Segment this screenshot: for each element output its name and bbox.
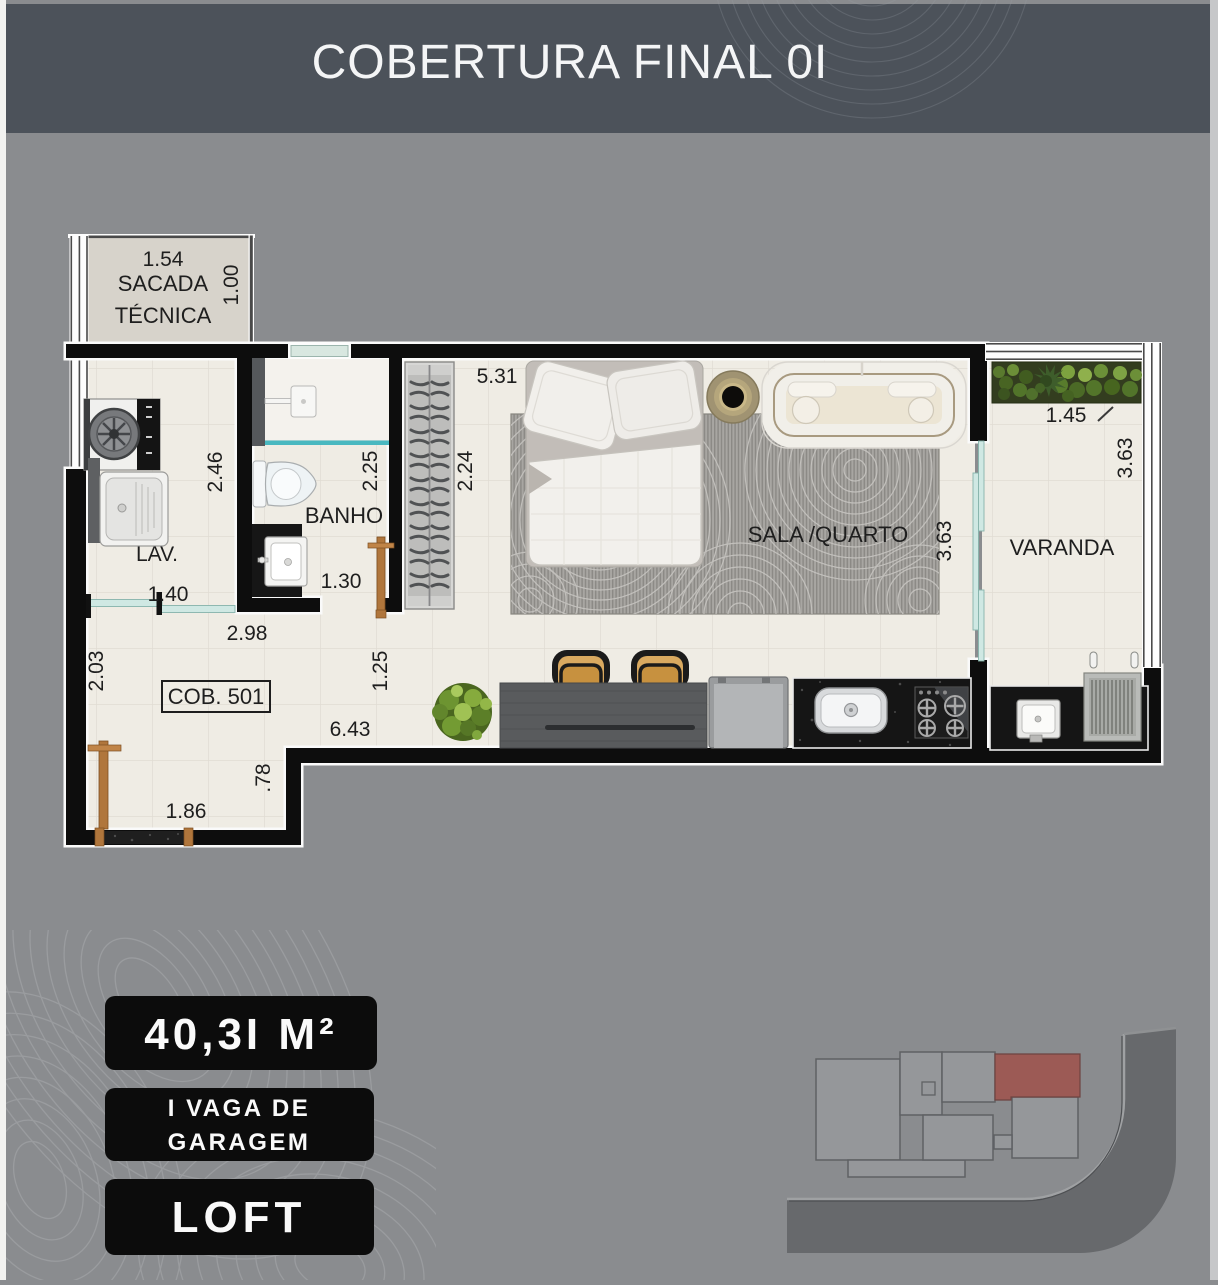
svg-text:VARANDA: VARANDA bbox=[1010, 535, 1115, 560]
svg-text:1.30: 1.30 bbox=[321, 570, 362, 593]
svg-text:2.98: 2.98 bbox=[227, 622, 268, 645]
svg-text:2.03: 2.03 bbox=[85, 651, 108, 692]
svg-text:I VAGA DE: I VAGA DE bbox=[168, 1095, 311, 1122]
svg-text:LOFT: LOFT bbox=[172, 1193, 307, 1242]
svg-text:1.00: 1.00 bbox=[220, 265, 243, 306]
svg-text:GARAGEM: GARAGEM bbox=[168, 1129, 311, 1156]
svg-text:1.40: 1.40 bbox=[148, 583, 189, 606]
svg-text:3.63: 3.63 bbox=[933, 521, 956, 562]
svg-text:6.43: 6.43 bbox=[330, 718, 371, 741]
svg-text:40,3I M²: 40,3I M² bbox=[144, 1010, 337, 1059]
svg-text:1.86: 1.86 bbox=[166, 800, 207, 823]
svg-text:LAV.: LAV. bbox=[136, 543, 178, 566]
svg-text:COB. 501: COB. 501 bbox=[168, 684, 265, 709]
svg-text:2.25: 2.25 bbox=[359, 451, 382, 492]
svg-text:3.63: 3.63 bbox=[1114, 438, 1137, 479]
svg-text:2.46: 2.46 bbox=[204, 452, 227, 493]
svg-text:.78: .78 bbox=[252, 763, 275, 792]
svg-text:5.31: 5.31 bbox=[477, 365, 518, 388]
svg-text:1.45: 1.45 bbox=[1046, 404, 1087, 427]
svg-text:2.24: 2.24 bbox=[454, 450, 477, 491]
svg-text:1.25: 1.25 bbox=[369, 651, 392, 692]
svg-text:1.54: 1.54 bbox=[143, 248, 184, 271]
svg-text:SALA /QUARTO: SALA /QUARTO bbox=[748, 522, 909, 547]
svg-text:BANHO: BANHO bbox=[305, 503, 383, 528]
svg-text:SACADA: SACADA bbox=[118, 271, 209, 296]
svg-text:TÉCNICA: TÉCNICA bbox=[115, 303, 212, 328]
svg-text:COBERTURA FINAL 0I: COBERTURA FINAL 0I bbox=[312, 36, 829, 89]
